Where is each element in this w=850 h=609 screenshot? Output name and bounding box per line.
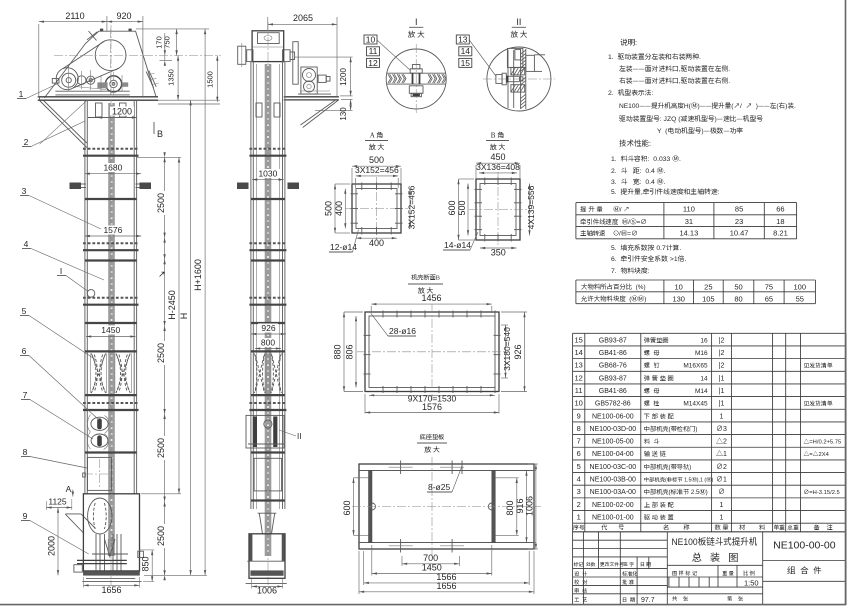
svg-text:弹 簧 垫 圈: 弹 簧 垫 圈 [644, 373, 674, 382]
svg-text:NE100-00-00: NE100-00-00 [773, 540, 836, 552]
svg-text:750: 750 [162, 36, 171, 49]
svg-text:A 角: A 角 [370, 131, 383, 141]
svg-text:1200: 1200 [339, 68, 348, 86]
svg-text:△=H/0.2+5.75: △=H/0.2+5.75 [804, 437, 842, 446]
svg-text:450: 450 [490, 152, 505, 162]
svg-text:|1: |1 [719, 399, 725, 409]
svg-text:10: 10 [675, 282, 683, 291]
svg-text:926: 926 [261, 323, 275, 333]
svg-text:5: 5 [577, 462, 581, 471]
svg-text:输 送 链: 输 送 链 [644, 449, 667, 458]
svg-text:↗: ↗ [158, 269, 166, 279]
svg-text:920: 920 [116, 11, 131, 21]
svg-text:|2: |2 [719, 361, 725, 371]
svg-text:∅1: ∅1 [716, 475, 727, 485]
svg-text:料 斗: 料 斗 [644, 437, 661, 446]
svg-text:3X180=540: 3X180=540 [502, 327, 512, 371]
svg-text:中部机壳(带检视门): 中部机壳(带检视门) [644, 424, 698, 433]
svg-text:∅2: ∅2 [716, 462, 727, 472]
svg-text:|1: |1 [719, 386, 725, 396]
svg-text:1500: 1500 [206, 71, 215, 88]
svg-text:6. 牵引件安全系数 >1倍.: 6. 牵引件安全系数 >1倍. [611, 253, 686, 263]
svg-text:GB5782-86: GB5782-86 [595, 401, 631, 408]
svg-text:允许大物料块度 (ⓂⓂ): 允许大物料块度 (ⓂⓂ) [581, 294, 646, 303]
svg-text:△2: △2 [716, 437, 727, 447]
svg-text:1030: 1030 [258, 168, 277, 178]
svg-text:A: A [66, 484, 72, 494]
svg-text:螺 栓: 螺 栓 [644, 399, 661, 408]
svg-text:800: 800 [261, 337, 275, 347]
svg-text:16: 16 [700, 337, 708, 344]
svg-text:12: 12 [368, 58, 378, 68]
svg-text:850: 850 [141, 556, 151, 571]
svg-text:NE100-02-00: NE100-02-00 [592, 502, 634, 509]
svg-text:3: 3 [577, 487, 581, 496]
svg-text:M14X45: M14X45 [683, 401, 708, 408]
svg-text:50: 50 [734, 282, 742, 291]
svg-text:1006: 1006 [257, 586, 277, 596]
svg-text:3X136=408: 3X136=408 [476, 162, 520, 172]
svg-text:比 例: 比 例 [743, 570, 755, 577]
svg-text:105: 105 [702, 294, 715, 303]
svg-text:1350: 1350 [166, 69, 175, 86]
svg-text:弹簧垫圈: 弹簧垫圈 [644, 335, 669, 344]
svg-text:1:50: 1:50 [744, 579, 759, 588]
svg-text:7: 7 [23, 390, 28, 400]
svg-text:31: 31 [685, 217, 693, 226]
svg-text:B 角: B 角 [491, 131, 504, 141]
svg-text:图 样 标 记: 图 样 标 记 [672, 570, 698, 577]
svg-text:14.13: 14.13 [680, 229, 699, 238]
svg-text:H-2450: H-2450 [167, 290, 177, 320]
svg-text:代 号: 代 号 [601, 522, 624, 531]
svg-text:螺 钉: 螺 钉 [644, 361, 660, 370]
svg-text:1680: 1680 [103, 163, 122, 173]
svg-text:4: 4 [577, 475, 581, 484]
svg-text:工 艺: 工 艺 [574, 597, 587, 604]
svg-text:1: 1 [720, 513, 724, 523]
svg-text:中部机壳(非标节 1.5Ⓜ),1 (Ⓜ): 中部机壳(非标节 1.5Ⓜ),1 (Ⓜ) [644, 476, 714, 484]
svg-text:NE100-05-00: NE100-05-00 [592, 439, 634, 446]
svg-text:1656: 1656 [436, 581, 456, 591]
svg-text:8: 8 [23, 447, 28, 457]
svg-text:2500: 2500 [156, 343, 166, 363]
svg-text:500: 500 [324, 201, 334, 216]
svg-text:日 期: 日 期 [640, 561, 651, 568]
svg-text:更改文件号: 更改文件号 [599, 561, 624, 568]
svg-text:9: 9 [577, 411, 581, 420]
svg-text:2. 机型表示法:: 2. 机型表示法: [608, 87, 653, 97]
svg-text:NE100-03D-00: NE100-03D-00 [589, 426, 636, 433]
svg-text:大物料所占百分比 (%): 大物料所占百分比 (%) [581, 282, 646, 291]
svg-text:NE100-03B-00: NE100-03B-00 [590, 477, 636, 484]
svg-text:机壳断面B: 机壳断面B [411, 273, 440, 282]
svg-text:130: 130 [672, 294, 685, 303]
svg-text:B: B [157, 129, 163, 139]
svg-text:10: 10 [366, 34, 376, 44]
svg-text:5. 提升量,牵引件线速度和主轴转速:: 5. 提升量,牵引件线速度和主轴转速: [611, 186, 719, 196]
svg-text:3X152=456: 3X152=456 [355, 165, 399, 175]
svg-text:NE100-04-00: NE100-04-00 [592, 451, 634, 458]
svg-text:备 注: 备 注 [814, 522, 833, 531]
svg-text:驱动装置型号: JZQ (减速机型号)—速比—机型号: 驱动装置型号: JZQ (减速机型号)—速比—机型号 [618, 113, 763, 123]
svg-text:1456: 1456 [421, 293, 441, 303]
svg-text:中部机壳(标准节 2.5Ⓜ): 中部机壳(标准节 2.5Ⓜ) [644, 487, 708, 496]
svg-text:第 张: 第 张 [727, 596, 744, 603]
svg-text:共 张: 共 张 [672, 596, 689, 603]
svg-text:左装——面对进料口,驱动装置在左侧.: 左装——面对进料口,驱动装置在左侧. [618, 63, 730, 73]
svg-text:∅3: ∅3 [716, 424, 727, 434]
svg-text:11: 11 [575, 386, 583, 395]
svg-text:2. 斗 距: 0.4 Ⓜ.: 2. 斗 距: 0.4 Ⓜ. [611, 165, 666, 175]
svg-text:2500: 2500 [156, 193, 166, 213]
svg-text:名 称: 名 称 [662, 522, 690, 531]
svg-text:∅=H-3.15/2.5: ∅=H-3.15/2.5 [804, 487, 840, 496]
svg-text:组 合 件: 组 合 件 [787, 565, 822, 577]
svg-text:△=△2X4: △=△2X4 [804, 449, 830, 458]
svg-text:△1: △1 [716, 449, 727, 459]
svg-text:8.21: 8.21 [773, 229, 788, 238]
svg-text:14-ø14: 14-ø14 [444, 240, 471, 250]
svg-text:1006: 1006 [524, 496, 534, 516]
svg-text:600: 600 [447, 200, 457, 215]
svg-text:14: 14 [575, 348, 583, 357]
svg-text:上 部 装 配: 上 部 装 配 [644, 500, 675, 509]
svg-text:放 大: 放 大 [408, 29, 425, 40]
svg-text:2: 2 [24, 137, 29, 147]
svg-text:GB93-87: GB93-87 [599, 337, 627, 344]
svg-text:18: 18 [776, 217, 784, 226]
svg-text:7. 物料块度:: 7. 物料块度: [611, 265, 650, 275]
svg-text:中部机壳(带导轨): 中部机壳(带导轨) [644, 462, 691, 471]
svg-text:M16X65: M16X65 [683, 363, 708, 370]
svg-text:1: 1 [720, 411, 724, 421]
svg-text:M16: M16 [695, 350, 708, 357]
svg-text:2000: 2000 [47, 536, 57, 556]
svg-text:牵引件线速度 Ⓜ/Ⓢ=∅: 牵引件线速度 Ⓜ/Ⓢ=∅ [580, 217, 647, 226]
svg-text:1576: 1576 [422, 402, 442, 412]
svg-text:总 装 图: 总 装 图 [692, 549, 739, 564]
svg-text:GB41-86: GB41-86 [599, 388, 627, 395]
svg-text:75: 75 [765, 282, 773, 291]
svg-text:∅: ∅ [718, 487, 725, 497]
svg-text:600: 600 [342, 500, 352, 515]
svg-text:3X152=456: 3X152=456 [407, 185, 417, 229]
svg-text:8: 8 [577, 424, 581, 433]
svg-text:I: I [60, 266, 62, 276]
svg-text:见发货清单: 见发货清单 [804, 399, 834, 408]
svg-text:1576: 1576 [103, 225, 122, 235]
svg-text:15: 15 [461, 58, 471, 68]
svg-text:NE100-01-00: NE100-01-00 [592, 515, 634, 522]
svg-text:GB68-76: GB68-76 [599, 363, 627, 370]
svg-text:28-ø16: 28-ø16 [389, 326, 416, 336]
svg-text:400: 400 [334, 201, 344, 216]
svg-text:数 量: 数 量 [714, 522, 728, 531]
svg-text:主轴转速 ⊙/Ⓜ=∅: 主轴转速 ⊙/Ⓜ=∅ [580, 229, 637, 238]
svg-text:说明:: 说明: [620, 37, 637, 48]
svg-text:标准化: 标准化 [622, 571, 638, 578]
svg-text:螺 母: 螺 母 [644, 386, 660, 395]
svg-text:日 期: 日 期 [622, 597, 635, 604]
svg-text:880: 880 [333, 344, 343, 359]
svg-text:GB93-87: GB93-87 [599, 375, 627, 382]
svg-text:1200: 1200 [112, 107, 132, 117]
svg-text:GB41-86: GB41-86 [599, 350, 627, 357]
svg-text:NE100板链斗式提升机: NE100板链斗式提升机 [672, 534, 758, 548]
svg-text:序号: 序号 [573, 522, 585, 531]
svg-text:2500: 2500 [156, 526, 166, 546]
svg-text:6: 6 [577, 449, 581, 458]
svg-text:130: 130 [339, 107, 348, 121]
svg-text:2065: 2065 [293, 13, 313, 23]
svg-text:25: 25 [704, 282, 712, 291]
svg-text:400: 400 [369, 238, 384, 248]
svg-text:M14: M14 [695, 388, 708, 395]
svg-text:设 计: 设 计 [574, 571, 588, 578]
svg-text:II: II [516, 17, 521, 27]
svg-text:500: 500 [369, 155, 384, 165]
svg-text:右装——面对进料口,驱动装置在右侧.: 右装——面对进料口,驱动装置在右侧. [618, 75, 730, 85]
svg-text:14: 14 [700, 375, 708, 382]
svg-text:1: 1 [19, 89, 24, 99]
svg-text:见发货清单: 见发货清单 [804, 361, 834, 370]
svg-text:85: 85 [735, 205, 743, 214]
svg-text:驱 动 装 置: 驱 动 装 置 [644, 513, 674, 522]
svg-text:2110: 2110 [65, 11, 84, 21]
svg-text:4: 4 [24, 239, 29, 249]
svg-text:926: 926 [513, 344, 523, 359]
svg-text:66: 66 [776, 205, 784, 214]
svg-text:底座垫板: 底座垫板 [420, 432, 446, 441]
svg-text:批 准: 批 准 [622, 579, 634, 586]
svg-text:65: 65 [765, 294, 773, 303]
svg-text:总重: 总重 [787, 522, 800, 531]
svg-text:5: 5 [22, 306, 27, 316]
svg-text:4X139=556: 4X139=556 [526, 185, 536, 229]
svg-text:重 量: 重 量 [722, 570, 734, 577]
svg-text:签 字: 签 字 [622, 561, 634, 568]
svg-text:H+1600: H+1600 [193, 259, 203, 291]
svg-text:1656: 1656 [101, 585, 121, 595]
svg-text:7: 7 [577, 437, 581, 446]
svg-text:100: 100 [793, 282, 806, 291]
svg-text:8-ø25: 8-ø25 [428, 482, 450, 492]
svg-text:55: 55 [796, 294, 804, 303]
svg-text:|1: |1 [719, 373, 725, 383]
svg-text:放 大: 放 大 [369, 143, 386, 153]
svg-text:|2: |2 [719, 335, 725, 345]
svg-text:1125: 1125 [48, 496, 67, 506]
svg-text:审 核: 审 核 [574, 587, 588, 594]
svg-text:3: 3 [22, 186, 27, 196]
svg-text:1: 1 [720, 500, 724, 510]
svg-text:|2: |2 [719, 348, 725, 358]
svg-text:NE100-06-00: NE100-06-00 [592, 413, 634, 420]
svg-text:350: 350 [491, 248, 506, 258]
svg-text:单重: 单重 [773, 522, 786, 531]
svg-text:2500: 2500 [156, 438, 166, 458]
svg-text:下 部 装 配: 下 部 装 配 [643, 411, 675, 420]
svg-text:500: 500 [457, 200, 467, 215]
svg-text:13: 13 [458, 34, 468, 44]
svg-text:II: II [297, 432, 301, 441]
svg-text:处数: 处数 [586, 561, 596, 568]
svg-text:I: I [415, 17, 418, 27]
svg-text:14: 14 [461, 46, 471, 56]
svg-text:13: 13 [575, 361, 583, 370]
svg-text:1. 驱动装置分左装和右装两种.: 1. 驱动装置分左装和右装两种. [608, 51, 701, 61]
svg-text:提 升 量 Ⓜ/ ↗: 提 升 量 Ⓜ/ ↗ [580, 205, 630, 214]
svg-text:Y (电动机型号)—极数—功率: Y (电动机型号)—极数—功率 [657, 125, 743, 135]
svg-text:放 大: 放 大 [510, 29, 527, 40]
svg-text:23: 23 [735, 217, 743, 226]
svg-text:材 料: 材 料 [739, 522, 765, 531]
svg-text:放 大: 放 大 [424, 445, 441, 455]
svg-text:9: 9 [23, 511, 28, 521]
svg-text:700: 700 [423, 553, 438, 563]
svg-text:5. 填充系数按 0.7计算.: 5. 填充系数按 0.7计算. [611, 242, 681, 252]
svg-text:1450: 1450 [101, 325, 120, 335]
svg-text:NE100——提升机高度H(Ⓜ)——提升量(↗/ ↗ ): NE100——提升机高度H(Ⓜ)——提升量(↗/ ↗ )——左(右)装. [619, 100, 796, 110]
svg-text:螺 母: 螺 母 [644, 348, 660, 357]
svg-text:806: 806 [345, 344, 355, 359]
svg-text:3. 斗 宽: 0.4 Ⓜ.: 3. 斗 宽: 0.4 Ⓜ. [611, 176, 666, 186]
svg-text:NE100-03C-00: NE100-03C-00 [589, 464, 636, 471]
svg-text:放 大: 放 大 [490, 143, 507, 153]
svg-text:1: 1 [577, 513, 581, 522]
svg-text:H: H [179, 313, 189, 320]
svg-text:标记: 标记 [574, 561, 585, 568]
svg-text:110: 110 [683, 205, 695, 214]
svg-text:800: 800 [505, 500, 515, 515]
svg-text:10.47: 10.47 [730, 229, 749, 238]
svg-text:15: 15 [575, 335, 583, 344]
svg-text:NE100-03A-00: NE100-03A-00 [590, 489, 636, 496]
svg-text:80: 80 [734, 294, 742, 303]
svg-text:校 对: 校 对 [574, 579, 588, 586]
svg-text:6: 6 [22, 346, 27, 356]
svg-text:11: 11 [369, 46, 378, 56]
svg-text:技术性能:: 技术性能: [619, 138, 651, 149]
svg-text:10: 10 [575, 399, 583, 408]
svg-text:1. 料斗容积: 0.033 Ⓜ.: 1. 料斗容积: 0.033 Ⓜ. [611, 153, 681, 163]
svg-text:12: 12 [575, 373, 583, 382]
svg-text:2: 2 [577, 500, 581, 509]
svg-text:97.7: 97.7 [641, 597, 655, 604]
